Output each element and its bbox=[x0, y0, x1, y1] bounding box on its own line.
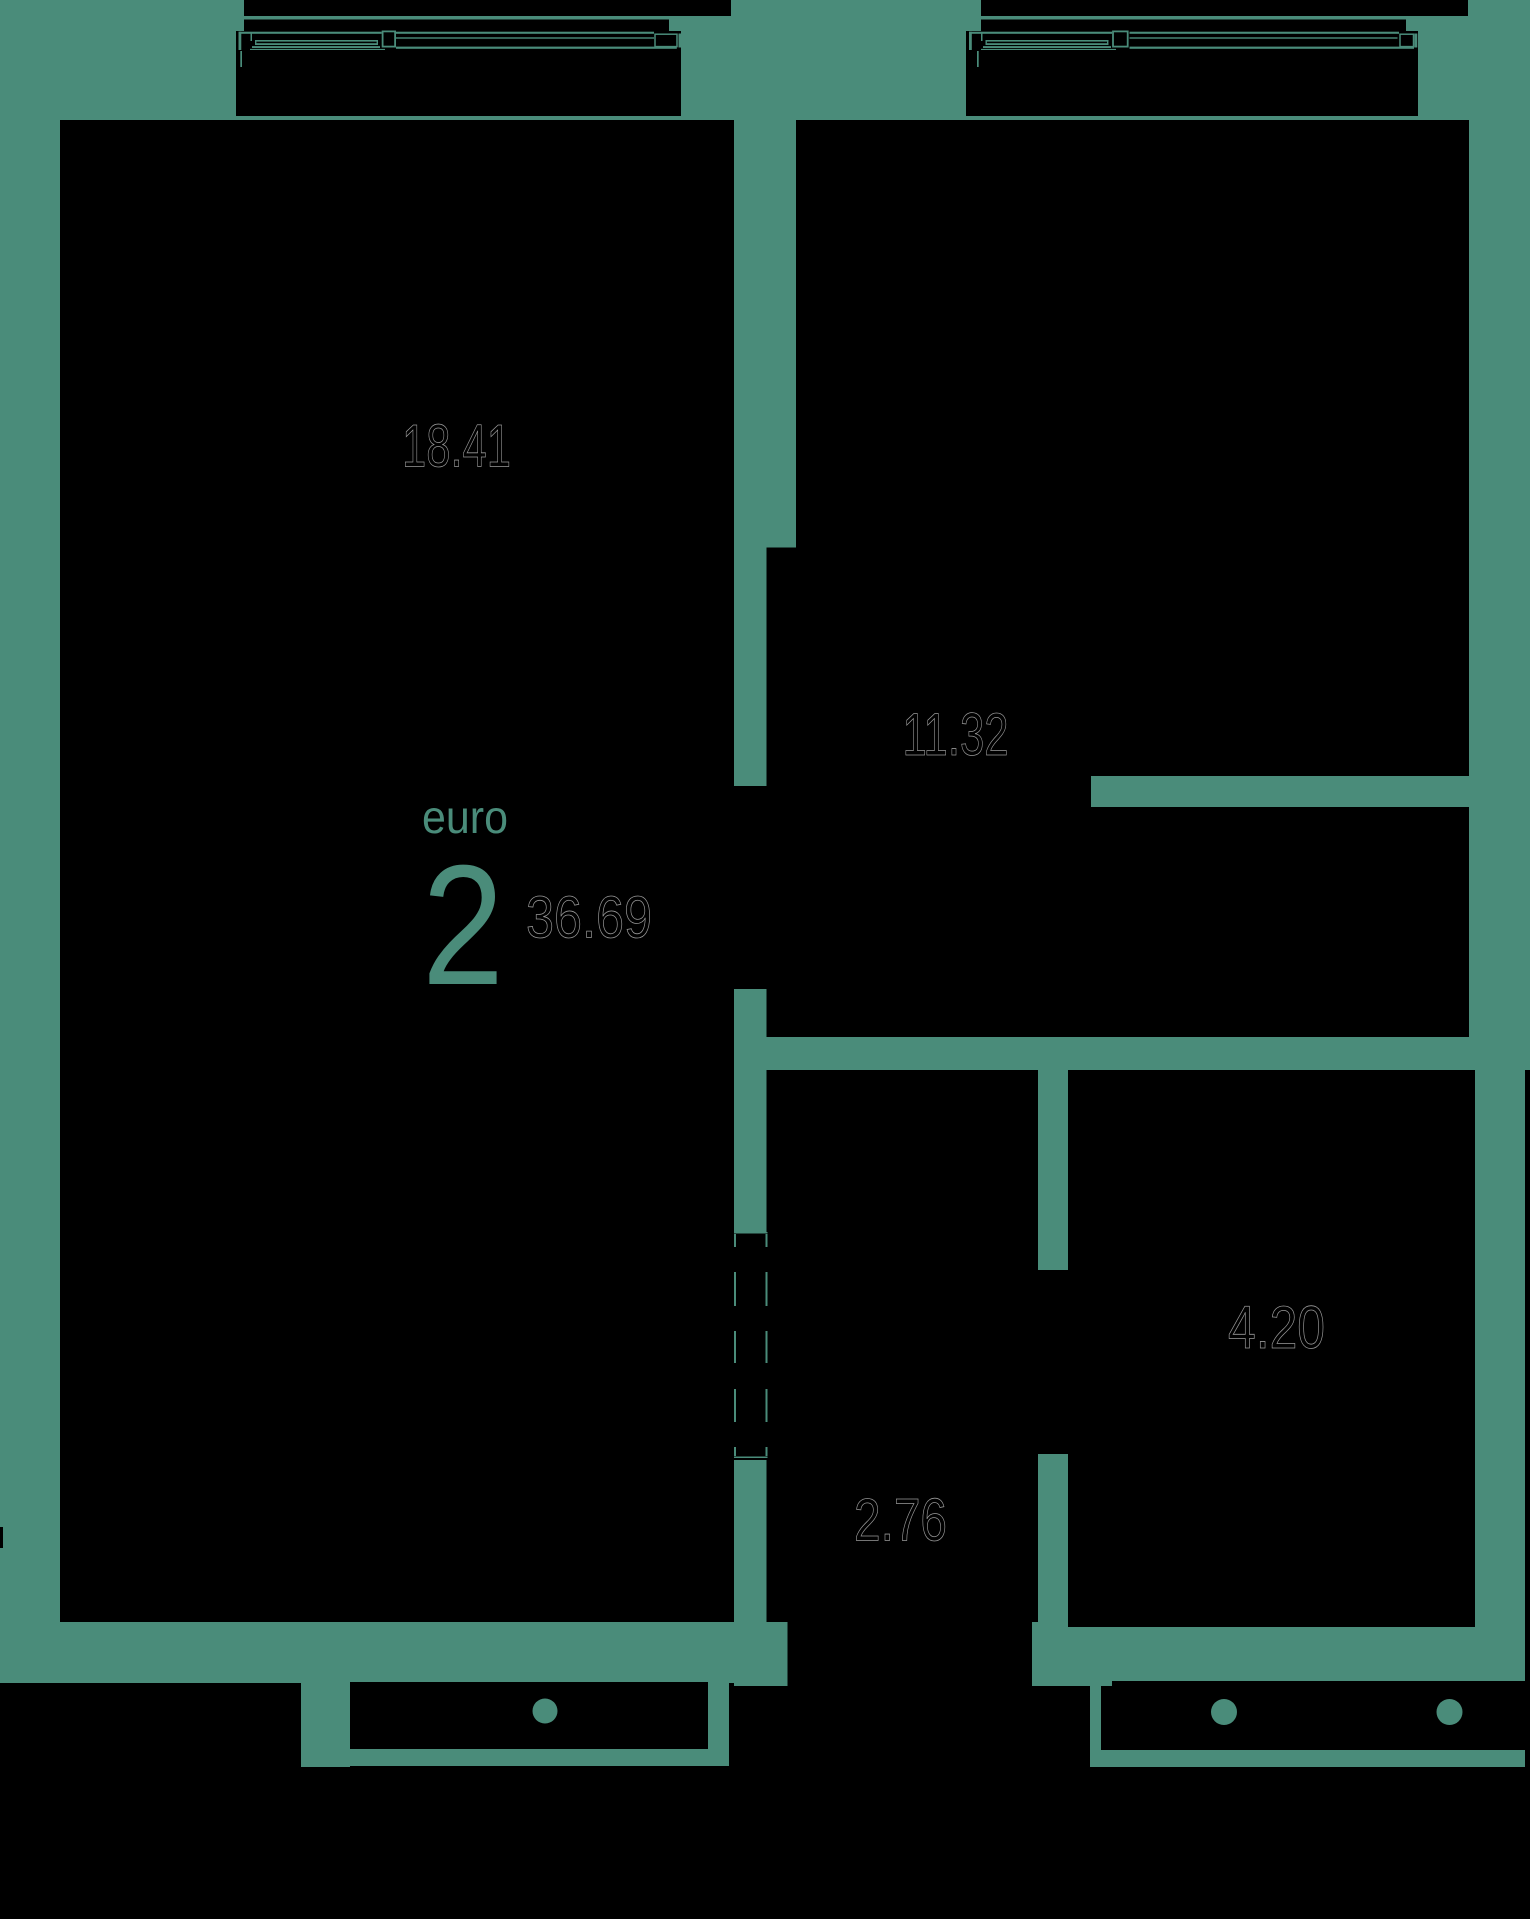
svg-text:18.41: 18.41 bbox=[402, 413, 511, 480]
svg-text:2: 2 bbox=[422, 830, 504, 1021]
svg-text:4.20: 4.20 bbox=[1228, 1294, 1325, 1361]
svg-text:36.69: 36.69 bbox=[526, 885, 652, 951]
svg-text:11.32: 11.32 bbox=[903, 701, 1009, 768]
svg-text:2.76: 2.76 bbox=[854, 1487, 947, 1554]
